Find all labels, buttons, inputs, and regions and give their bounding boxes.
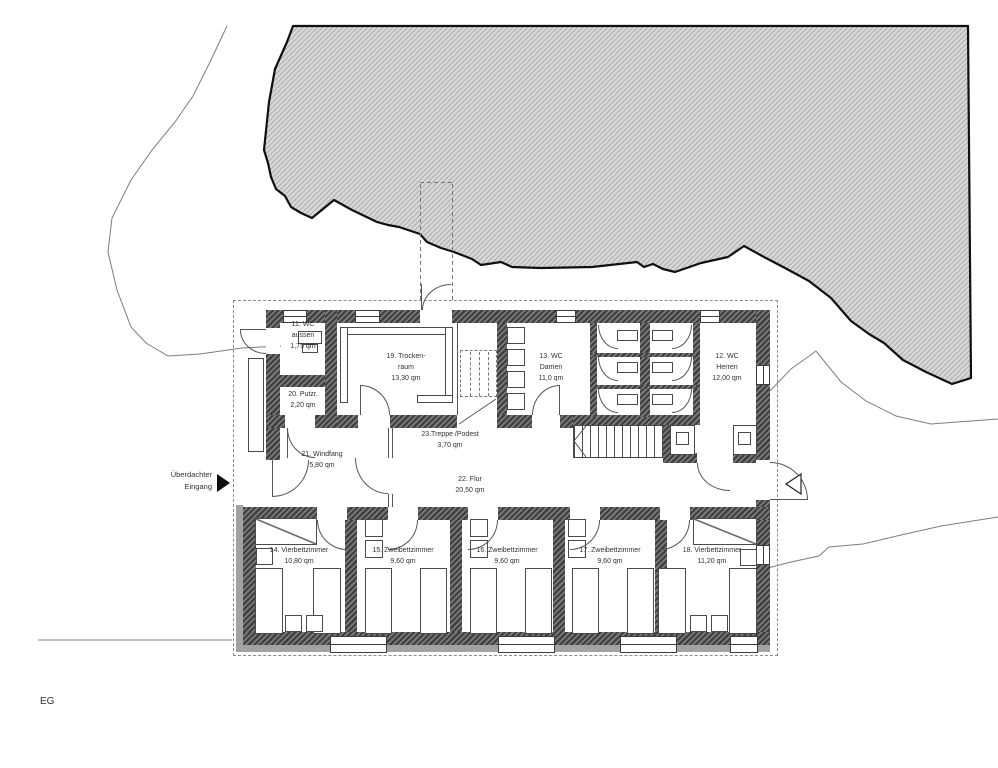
stall-toilet-r1 <box>652 330 673 341</box>
room-label-line: 15. Zweibettzimmer <box>358 545 448 556</box>
bed-zimmer-15-a <box>365 568 392 634</box>
door-gap-zimmer-15 <box>388 507 418 520</box>
bed-zimmer-17-a <box>572 568 599 634</box>
room-label-line: 22. Flur <box>420 474 520 485</box>
entrance-arrow-icon <box>217 474 230 492</box>
stall-toilet-r3 <box>652 394 673 405</box>
wall-stalls-west <box>590 323 597 417</box>
wall-herren-stub <box>663 425 670 453</box>
wall-east-upper <box>756 310 770 460</box>
room-label-flur: 22. Flur 20,50 qm <box>420 474 520 496</box>
room-label-windfang: 21. Windfang 5,80 qm <box>272 449 372 471</box>
door-gap-north <box>420 310 452 323</box>
door-leaf-wc-damen <box>559 385 560 415</box>
room-label-line: raum <box>356 362 456 373</box>
herren-entry-sink-2 <box>738 432 751 445</box>
room-label-line: 16. Zweibettzimmer <box>462 545 552 556</box>
door-gap-trockenraum <box>358 415 390 428</box>
door-gap-zimmer-14 <box>317 507 347 520</box>
stair-dashed-tread <box>488 352 489 396</box>
bed-zimmer-18-b <box>729 568 757 634</box>
bed-zimmer-18-a <box>658 568 686 634</box>
room-label-line: 5,80 qm <box>272 460 372 471</box>
window-south-2 <box>498 636 555 653</box>
room-label-line: 18. Vierbettzimmer <box>667 545 757 556</box>
stool-zimmer-18-b <box>711 615 728 632</box>
door-gap-zimmer-18 <box>660 507 690 520</box>
stall-toilet-l1 <box>617 330 638 341</box>
stair-dashed-tread <box>479 352 480 396</box>
terrain-contour-right-lower <box>764 517 998 569</box>
room-label-wc-aussen: 11. WC aussen 1,75 qm <box>277 319 329 352</box>
window-south-3 <box>620 636 677 653</box>
wall-damen-west <box>497 323 507 415</box>
glass-partition-windfang-3 <box>388 494 389 507</box>
trockenraum-shelf-top <box>340 327 453 335</box>
wall-aussen-putz <box>280 375 325 387</box>
stool-zimmer-14-b <box>306 615 323 632</box>
room-label-line: 19. Trocken- <box>356 351 456 362</box>
shelf-zimmer-15-a <box>365 519 383 537</box>
damen-sink-4 <box>507 393 525 410</box>
door-leaf-north <box>421 284 422 310</box>
door-gap-wc-damen <box>532 415 560 428</box>
glass-partition-windfang-1 <box>388 428 389 458</box>
room-label-line: 17. Zweibettzimmer <box>565 545 655 556</box>
trockenraum-shelf-left <box>340 327 348 403</box>
window-north-2 <box>355 310 380 323</box>
room-label-line: 11,0 qm <box>516 373 586 384</box>
room-label-line: 2,20 qm <box>276 400 330 411</box>
room-label-line: 3,70 qm <box>395 440 505 451</box>
room-label-line: 1,75 qm <box>277 341 329 352</box>
floor-label: EG <box>40 696 70 707</box>
herren-entry-sink-1 <box>676 432 689 445</box>
room-label-line: 9,60 qm <box>358 556 448 567</box>
room-label-wc-herren: 12. WC Herren 12,00 qm <box>691 351 763 384</box>
floor-plan-canvas: 11. WC aussen 1,75 qm 20. Putzr. 2,20 qm… <box>0 0 998 768</box>
bed-zimmer-16-a <box>470 568 497 634</box>
room-label-line: 9,60 qm <box>565 556 655 567</box>
stair-dashed-tread <box>470 352 471 396</box>
stool-zimmer-18-a <box>690 615 707 632</box>
door-leaf-east-exit <box>770 499 808 500</box>
stall-toilet-l2 <box>617 362 638 373</box>
room-label-zimmer-17: 17. Zweibettzimmer 9,60 qm <box>565 545 655 567</box>
room-label-line: 23.Treppe /Podest <box>395 429 505 440</box>
entrance-annotation-line: Überdachter <box>138 469 212 481</box>
room-label-line: 14. Vierbettzimmer <box>254 545 344 556</box>
room-label-line: 11,20 qm <box>667 556 757 567</box>
room-label-trockenraum: 19. Trocken- raum 13,30 qm <box>356 351 456 384</box>
room-label-putzraum: 20. Putzr. 2,20 qm <box>276 389 330 411</box>
window-east-2 <box>756 545 770 565</box>
stall-toilet-l3 <box>617 394 638 405</box>
window-south-4 <box>730 636 758 653</box>
entrance-annotation: Überdachter Eingang <box>138 469 212 493</box>
wall-part-16-17 <box>553 520 565 632</box>
glass-partition-windfang-2 <box>392 428 393 458</box>
plinth-west <box>236 505 243 652</box>
room-label-zimmer-16: 16. Zweibettzimmer 9,60 qm <box>462 545 552 567</box>
room-label-line: aussen <box>277 330 329 341</box>
wall-east-lower <box>756 500 770 645</box>
window-south-1 <box>330 636 387 653</box>
stool-zimmer-14-a <box>285 615 302 632</box>
bed-zimmer-16-b <box>525 568 552 634</box>
room-label-line: 21. Windfang <box>272 449 372 460</box>
room-label-line: Damen <box>516 362 586 373</box>
stall-toilet-r2 <box>652 362 673 373</box>
entrance-annotation-line: Eingang <box>138 481 212 493</box>
door-leaf-wc-aussen <box>240 329 266 330</box>
wall-north <box>266 310 770 323</box>
trockenraum-shelf-bottom <box>417 395 453 403</box>
stair-upper-flight-dashed <box>460 350 497 397</box>
room-label-wc-damen: 13. WC Damen 11,0 qm <box>516 351 586 384</box>
wall-part-15-16 <box>450 520 462 632</box>
room-label-zimmer-15: 15. Zweibettzimmer 9,60 qm <box>358 545 448 567</box>
room-label-line: 10,80 qm <box>254 556 344 567</box>
room-label-treppe-podest: 23.Treppe /Podest 3,70 qm <box>395 429 505 451</box>
damen-sink-1 <box>507 327 525 344</box>
room-label-line: 12,00 qm <box>691 373 763 384</box>
room-label-line: 12. WC <box>691 351 763 362</box>
door-gap-putzraum <box>285 415 315 428</box>
room-label-line: 20. Putzr. <box>276 389 330 400</box>
room-label-line: 13. WC <box>516 351 586 362</box>
bunk-bed-zimmer-18 <box>693 518 757 545</box>
bench-outside-west <box>248 358 264 452</box>
room-label-zimmer-18: 18. Vierbettzimmer 11,20 qm <box>667 545 757 567</box>
partition-trocken-treppe <box>457 323 458 415</box>
bed-zimmer-17-b <box>627 568 654 634</box>
room-label-line: 11. WC <box>277 319 329 330</box>
door-gap-wc-herren <box>697 453 733 463</box>
door-leaf-trockenraum <box>360 385 361 415</box>
room-label-zimmer-14: 14. Vierbettzimmer 10,80 qm <box>254 545 344 567</box>
window-north-3 <box>556 310 576 323</box>
stair-lower-flight <box>573 425 663 458</box>
room-label-line: 9,60 qm <box>462 556 552 567</box>
room-label-line: Herren <box>691 362 763 373</box>
wall-stalls-center <box>640 323 650 417</box>
room-label-line: 20,50 qm <box>420 485 520 496</box>
bunk-bed-zimmer-14 <box>255 518 317 545</box>
bed-zimmer-15-b <box>420 568 447 634</box>
window-north-4 <box>700 310 720 323</box>
bed-zimmer-14-a <box>255 568 283 634</box>
room-label-line: 13,30 qm <box>356 373 456 384</box>
glass-partition-windfang-4 <box>392 494 393 507</box>
